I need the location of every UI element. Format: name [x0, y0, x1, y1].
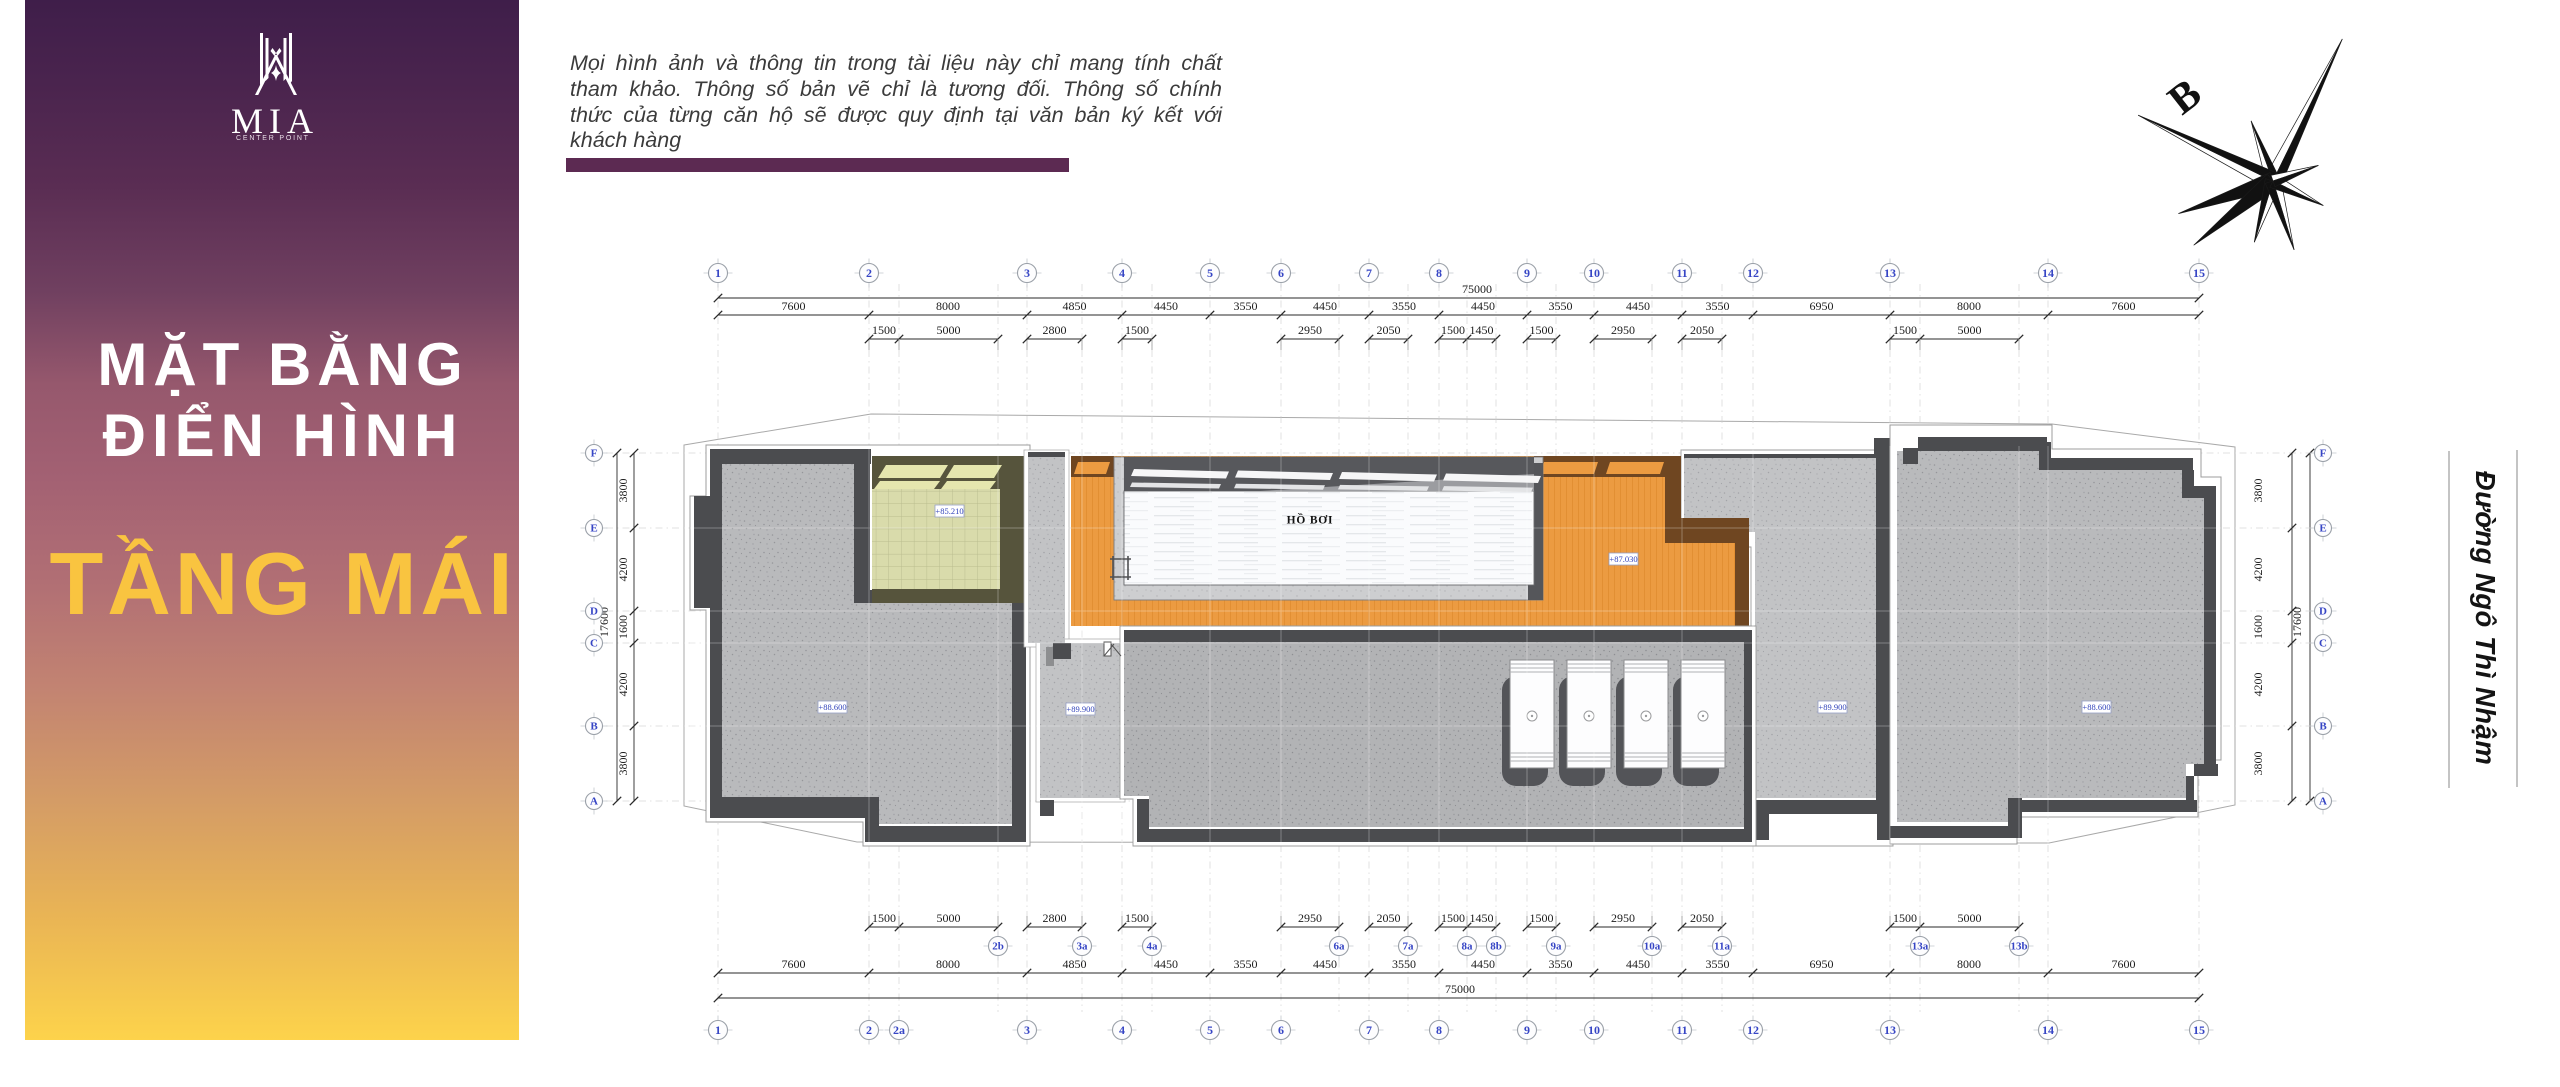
svg-text:2950: 2950: [1298, 911, 1322, 925]
svg-text:7600: 7600: [782, 299, 806, 313]
svg-text:1500: 1500: [872, 323, 896, 337]
svg-text:4450: 4450: [1471, 299, 1495, 313]
svg-text:17600: 17600: [2290, 607, 2304, 637]
svg-text:1500: 1500: [1125, 323, 1149, 337]
svg-text:1500: 1500: [1441, 911, 1465, 925]
svg-text:4200: 4200: [2251, 558, 2265, 582]
svg-text:1500: 1500: [1893, 911, 1917, 925]
svg-text:2b: 2b: [992, 941, 1004, 953]
svg-text:6950: 6950: [1810, 957, 1834, 971]
svg-text:8a: 8a: [1462, 941, 1474, 953]
svg-text:7600: 7600: [2112, 299, 2136, 313]
svg-text:12: 12: [1747, 1023, 1759, 1037]
svg-text:14: 14: [2042, 266, 2054, 280]
svg-text:5000: 5000: [937, 323, 961, 337]
svg-text:A: A: [590, 796, 598, 808]
svg-text:13: 13: [1884, 1023, 1896, 1037]
svg-text:4450: 4450: [1471, 957, 1495, 971]
svg-text:8: 8: [1436, 1023, 1442, 1037]
svg-text:8000: 8000: [1957, 957, 1981, 971]
svg-text:B: B: [2319, 721, 2327, 733]
svg-text:1600: 1600: [616, 615, 630, 639]
svg-text:HỒ BƠI: HỒ BƠI: [1287, 512, 1334, 527]
svg-text:3800: 3800: [2251, 752, 2265, 776]
svg-text:4200: 4200: [616, 558, 630, 582]
svg-text:8000: 8000: [936, 957, 960, 971]
svg-text:4: 4: [1119, 266, 1125, 280]
svg-text:+85.210: +85.210: [935, 506, 963, 516]
svg-text:3: 3: [1024, 266, 1030, 280]
svg-text:3550: 3550: [1392, 957, 1416, 971]
svg-text:3: 3: [1024, 1023, 1030, 1037]
svg-text:5000: 5000: [1958, 911, 1982, 925]
svg-text:15: 15: [2193, 1023, 2205, 1037]
svg-text:1500: 1500: [1125, 911, 1149, 925]
svg-text:75000: 75000: [1445, 982, 1475, 996]
svg-text:3550: 3550: [1706, 299, 1730, 313]
svg-text:9: 9: [1524, 1023, 1530, 1037]
svg-text:11a: 11a: [1714, 941, 1730, 953]
svg-text:4450: 4450: [1626, 957, 1650, 971]
svg-text:13: 13: [1884, 266, 1896, 280]
svg-text:4850: 4850: [1063, 957, 1087, 971]
svg-text:4450: 4450: [1313, 299, 1337, 313]
svg-text:7: 7: [1366, 1023, 1372, 1037]
svg-text:2800: 2800: [1043, 911, 1067, 925]
svg-text:1500: 1500: [1530, 911, 1554, 925]
svg-text:7600: 7600: [2112, 957, 2136, 971]
svg-text:1: 1: [715, 266, 721, 280]
svg-text:12: 12: [1747, 266, 1759, 280]
svg-text:2950: 2950: [1611, 911, 1635, 925]
svg-text:4450: 4450: [1154, 957, 1178, 971]
svg-text:4450: 4450: [1626, 299, 1650, 313]
svg-text:75000: 75000: [1462, 282, 1492, 296]
svg-text:4200: 4200: [2251, 673, 2265, 697]
svg-text:2950: 2950: [1298, 323, 1322, 337]
svg-text:D: D: [590, 606, 598, 618]
svg-text:1600: 1600: [2251, 615, 2265, 639]
svg-text:3550: 3550: [1549, 957, 1573, 971]
svg-text:A: A: [2319, 796, 2327, 808]
svg-text:5: 5: [1207, 266, 1213, 280]
svg-text:2050: 2050: [1377, 323, 1401, 337]
svg-text:E: E: [590, 523, 597, 535]
svg-text:14: 14: [2042, 1023, 2054, 1037]
svg-text:6: 6: [1278, 1023, 1284, 1037]
svg-text:D: D: [2319, 606, 2327, 618]
svg-text:Đường Ngô Thì Nhậm: Đường Ngô Thì Nhậm: [2470, 471, 2501, 766]
svg-text:13a: 13a: [1912, 941, 1929, 953]
svg-text:C: C: [590, 638, 598, 650]
svg-text:+87.030: +87.030: [1609, 554, 1637, 564]
svg-text:2050: 2050: [1690, 323, 1714, 337]
svg-text:2950: 2950: [1611, 323, 1635, 337]
svg-text:4450: 4450: [1313, 957, 1337, 971]
svg-text:4200: 4200: [616, 673, 630, 697]
svg-text:8000: 8000: [936, 299, 960, 313]
svg-text:3550: 3550: [1706, 957, 1730, 971]
svg-text:1: 1: [715, 1023, 721, 1037]
svg-text:9: 9: [1524, 266, 1530, 280]
svg-text:+89.900: +89.900: [1818, 702, 1846, 712]
svg-text:4450: 4450: [1154, 299, 1178, 313]
svg-text:+89.900: +89.900: [1066, 704, 1094, 714]
svg-text:10: 10: [1588, 266, 1600, 280]
svg-text:5: 5: [1207, 1023, 1213, 1037]
svg-text:6a: 6a: [1334, 941, 1346, 953]
svg-text:10a: 10a: [1644, 941, 1661, 953]
svg-text:11: 11: [1676, 266, 1687, 280]
svg-text:2050: 2050: [1690, 911, 1714, 925]
svg-text:1500: 1500: [872, 911, 896, 925]
svg-text:8: 8: [1436, 266, 1442, 280]
svg-text:1500: 1500: [1441, 323, 1465, 337]
svg-text:11: 11: [1676, 1023, 1687, 1037]
svg-text:2: 2: [866, 266, 872, 280]
svg-text:8b: 8b: [1490, 941, 1502, 953]
svg-text:1500: 1500: [1530, 323, 1554, 337]
svg-text:2: 2: [866, 1023, 872, 1037]
svg-text:5000: 5000: [937, 911, 961, 925]
svg-text:2800: 2800: [1043, 323, 1067, 337]
svg-text:1450: 1450: [1470, 911, 1494, 925]
svg-text:B: B: [2160, 70, 2210, 123]
svg-text:3800: 3800: [616, 752, 630, 776]
svg-text:1500: 1500: [1893, 323, 1917, 337]
svg-text:7: 7: [1366, 266, 1372, 280]
svg-text:6: 6: [1278, 266, 1284, 280]
svg-text:15: 15: [2193, 266, 2205, 280]
svg-text:2050: 2050: [1377, 911, 1401, 925]
svg-text:8000: 8000: [1957, 299, 1981, 313]
svg-text:B: B: [590, 721, 598, 733]
svg-text:3550: 3550: [1392, 299, 1416, 313]
svg-text:2a: 2a: [893, 1023, 905, 1037]
svg-text:4a: 4a: [1147, 941, 1159, 953]
svg-text:9a: 9a: [1551, 941, 1563, 953]
svg-text:F: F: [2320, 448, 2327, 460]
svg-text:7a: 7a: [1403, 941, 1415, 953]
svg-text:6950: 6950: [1810, 299, 1834, 313]
svg-text:10: 10: [1588, 1023, 1600, 1037]
svg-text:3550: 3550: [1549, 299, 1573, 313]
svg-text:+88.600: +88.600: [818, 702, 846, 712]
svg-text:13b: 13b: [2010, 941, 2027, 953]
svg-text:3800: 3800: [2251, 479, 2265, 503]
svg-text:E: E: [2319, 523, 2326, 535]
svg-text:3a: 3a: [1077, 941, 1089, 953]
svg-text:3550: 3550: [1234, 299, 1258, 313]
svg-text:3550: 3550: [1234, 957, 1258, 971]
svg-text:5000: 5000: [1958, 323, 1982, 337]
svg-text:3800: 3800: [616, 479, 630, 503]
svg-text:7600: 7600: [782, 957, 806, 971]
svg-text:4850: 4850: [1063, 299, 1087, 313]
svg-text:+88.600: +88.600: [2082, 702, 2110, 712]
svg-text:1450: 1450: [1470, 323, 1494, 337]
svg-text:C: C: [2319, 638, 2327, 650]
svg-text:F: F: [591, 448, 598, 460]
svg-text:4: 4: [1119, 1023, 1125, 1037]
